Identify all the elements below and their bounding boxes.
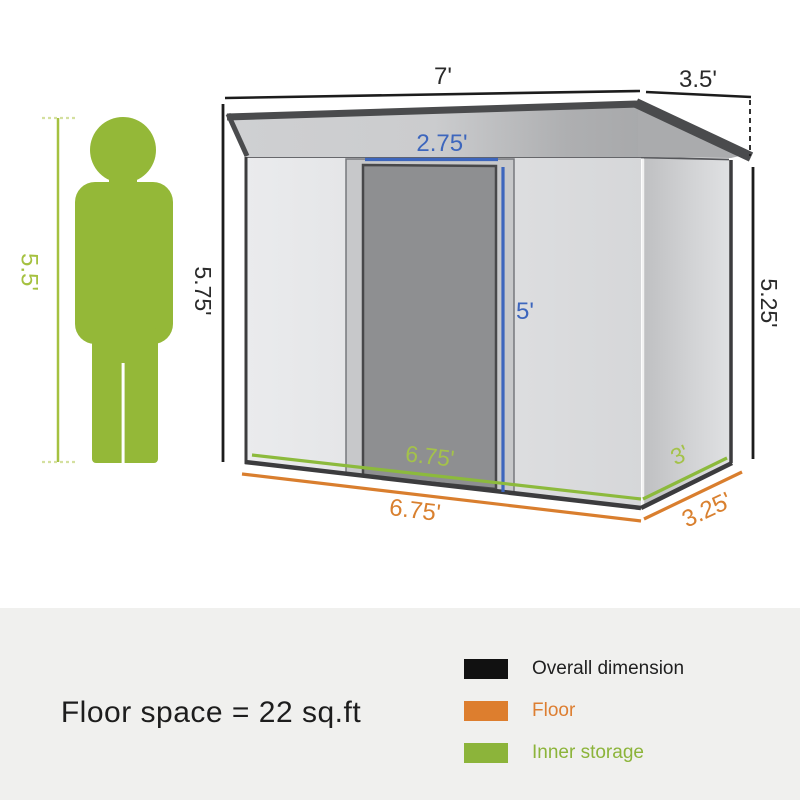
- floor-length-label: 6.75': [388, 494, 442, 527]
- legend-label-inner-storage: Inner storage: [532, 742, 644, 763]
- right-height-label: 5.25': [756, 278, 782, 327]
- roof-width-line: [225, 91, 640, 98]
- floor-swatch: [464, 701, 508, 721]
- legend-label-overall-dimension: Overall dimension: [532, 658, 684, 679]
- legend-row-floor: Floor: [464, 700, 684, 721]
- legend-row-inner-storage: Inner storage: [464, 742, 684, 763]
- legend-row-overall-dimension: Overall dimension: [464, 658, 684, 679]
- diagram-canvas: 5.5': [0, 0, 800, 608]
- inner-storage-swatch: [464, 743, 508, 763]
- floor-space-text: Floor space = 22 sq.ft: [11, 696, 411, 730]
- door-height-label: 5': [516, 298, 534, 325]
- person-legs: [92, 328, 158, 463]
- roof-depth-label: 3.5': [679, 66, 717, 93]
- floor-depth-label: 3.25': [678, 487, 736, 533]
- legend: Overall dimension Floor Inner storage: [464, 658, 684, 784]
- person-height-dimension: 5.5': [16, 118, 75, 462]
- person-torso: [75, 182, 173, 344]
- door-panel: [363, 165, 496, 489]
- person-silhouette: [75, 117, 173, 464]
- person-leg-divider: [122, 363, 125, 464]
- legend-label-floor: Floor: [532, 700, 575, 721]
- roof-width-label: 7': [434, 63, 452, 90]
- footer-panel: Floor space = 22 sq.ft Overall dimension…: [0, 608, 800, 800]
- door-width-label: 2.75': [416, 130, 467, 157]
- overall-dimension-swatch: [464, 659, 508, 679]
- inner-length-label: 6.75': [404, 440, 456, 471]
- person-height-label: 5.5': [16, 253, 43, 291]
- shed-dimension-diagram: 5.5': [0, 0, 800, 800]
- left-height-label: 5.75': [190, 266, 216, 315]
